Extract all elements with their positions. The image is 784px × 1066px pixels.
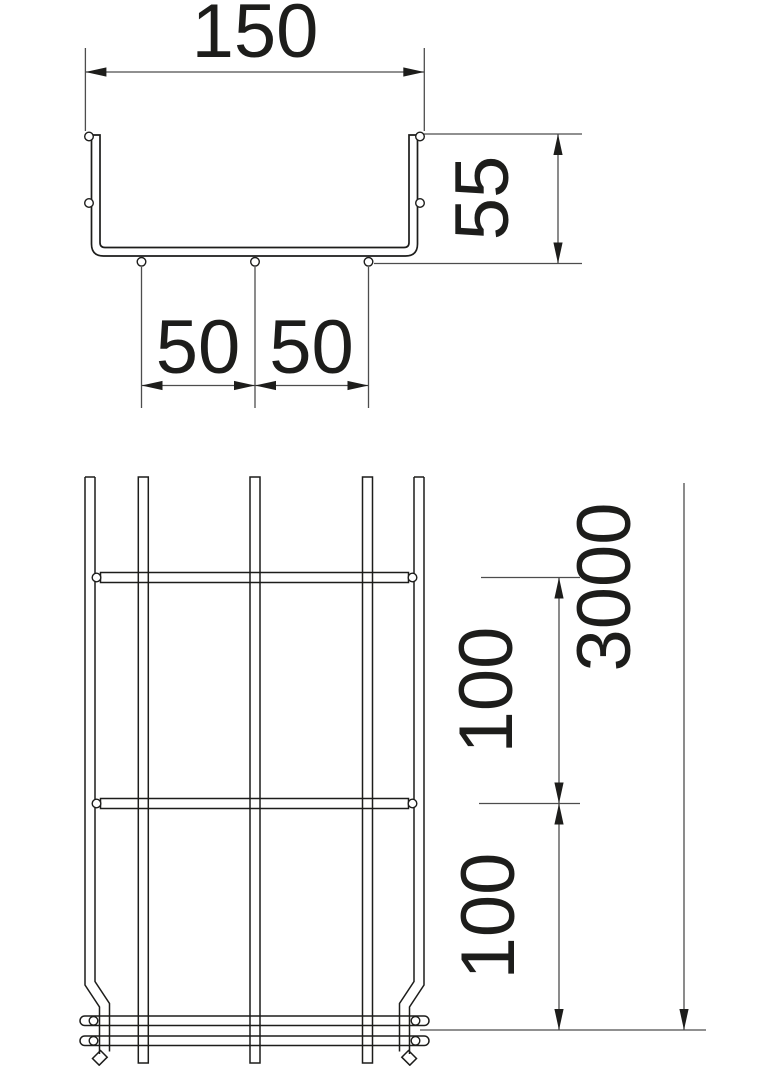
rung1-weld-left — [92, 573, 101, 582]
endbar1-weld-left — [89, 1017, 98, 1026]
dim-55-label: 55 — [440, 156, 525, 241]
rung2-weld-right — [408, 799, 417, 808]
bottom-wire-3 — [363, 477, 373, 1063]
inner-edge — [95, 477, 110, 1052]
rung2-weld-left — [92, 799, 101, 808]
dimension-3000: 3000 — [562, 483, 689, 1030]
wire-cross-sections — [85, 132, 425, 266]
transverse-rungs — [80, 573, 429, 1046]
inner-edge — [400, 477, 415, 1052]
side-wire-mid-left — [85, 199, 94, 208]
bottom-wire-left — [137, 258, 146, 267]
dimension-100-lower: 100 — [420, 804, 706, 1031]
dim-50-right-label: 50 — [269, 305, 354, 390]
rim-wire-top-left — [85, 132, 94, 141]
side-wire-right — [400, 477, 425, 1065]
arrowhead-down — [554, 1009, 563, 1030]
arrowhead-down — [679, 1009, 688, 1030]
dimension-100-upper: 100 — [444, 578, 580, 804]
technical-drawing-page: 150 55 50 50 — [0, 0, 784, 1066]
arrowhead-down — [553, 243, 562, 264]
tray-profile-outline — [92, 135, 418, 256]
dim-3000-label: 3000 — [562, 502, 647, 671]
rim-wire-top-right — [416, 132, 425, 141]
bottom-wire-right — [364, 258, 373, 267]
endbar2-weld-left — [89, 1037, 98, 1046]
arrowhead-down — [554, 783, 563, 804]
arrowhead-right — [403, 67, 424, 76]
dimension-50-50: 50 50 — [142, 267, 369, 408]
arrowhead-up — [553, 134, 562, 155]
rung1-weld-right — [408, 573, 417, 582]
dimension-55: 55 — [374, 134, 582, 264]
side-wire-mid-right — [416, 199, 425, 208]
bottom-wire-center — [251, 258, 260, 267]
dim-100-lower-label: 100 — [446, 853, 531, 980]
bottom-wire-2 — [250, 477, 260, 1063]
dim-150-label: 150 — [192, 0, 319, 74]
dim-50-left-label: 50 — [156, 305, 241, 390]
end-bar-2 — [80, 1036, 429, 1046]
dimension-150: 150 — [85, 0, 424, 131]
outer-edge — [85, 477, 100, 1054]
arrowhead-up — [554, 804, 563, 825]
side-wire-left — [85, 477, 110, 1065]
mesh-cable-tray-drawing: 150 55 50 50 — [0, 0, 784, 1066]
endbar1-weld-right — [411, 1017, 420, 1026]
end-bar-1 — [80, 1016, 429, 1026]
dim-100-upper-label: 100 — [444, 627, 529, 754]
bottom-wire-1 — [138, 477, 148, 1063]
longitudinal-wires — [85, 477, 424, 1065]
cross-section-view: 150 55 50 50 — [85, 0, 582, 408]
arrowhead-left — [85, 67, 106, 76]
endbar2-weld-right — [411, 1037, 420, 1046]
plan-view: 100 100 3000 — [80, 477, 706, 1065]
outer-edge — [410, 477, 425, 1054]
